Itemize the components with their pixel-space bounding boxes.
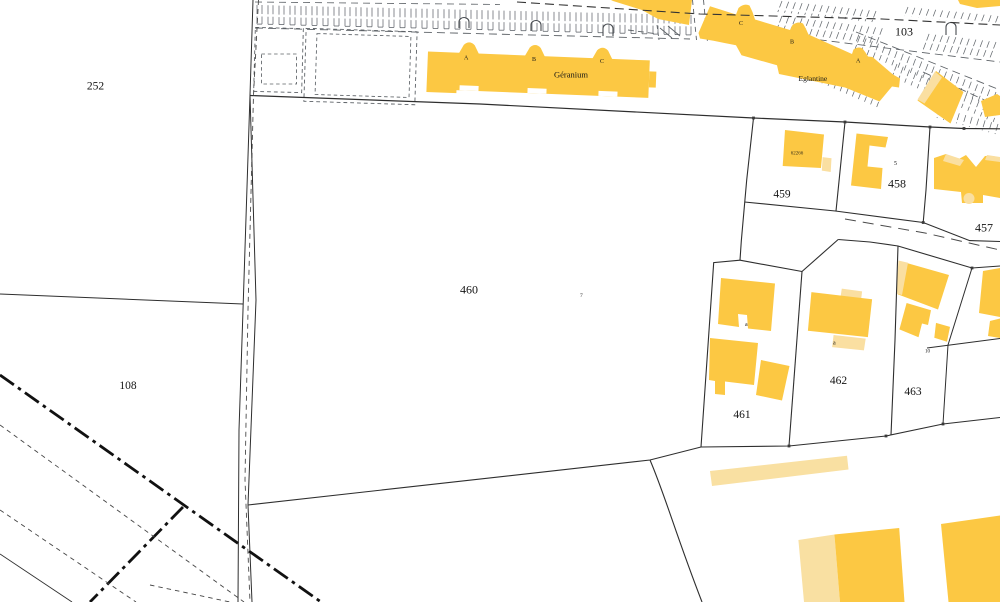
svg-text:C: C xyxy=(739,21,743,27)
svg-text:252: 252 xyxy=(87,81,105,93)
svg-text:463: 463 xyxy=(904,386,922,398)
svg-text:103: 103 xyxy=(895,25,913,39)
svg-text:a: a xyxy=(745,322,748,328)
svg-text:457: 457 xyxy=(975,221,993,235)
svg-text:5: 5 xyxy=(894,161,897,167)
svg-text:B: B xyxy=(532,57,536,63)
svg-text:108: 108 xyxy=(119,380,137,392)
svg-text:10: 10 xyxy=(925,350,931,355)
svg-text:7: 7 xyxy=(580,293,583,299)
svg-text:a: a xyxy=(833,341,836,347)
svg-text:B: B xyxy=(790,40,794,46)
svg-text:460: 460 xyxy=(460,283,478,297)
svg-text:462: 462 xyxy=(830,375,848,387)
svg-text:62266: 62266 xyxy=(791,152,804,157)
svg-text:459: 459 xyxy=(773,189,791,201)
svg-text:Géranium: Géranium xyxy=(554,70,588,80)
svg-text:C: C xyxy=(600,59,604,65)
svg-text:A: A xyxy=(856,59,861,65)
svg-text:A: A xyxy=(464,56,469,62)
svg-text:Eglantine: Eglantine xyxy=(799,74,828,83)
svg-text:461: 461 xyxy=(733,409,751,421)
svg-text:458: 458 xyxy=(888,177,906,191)
